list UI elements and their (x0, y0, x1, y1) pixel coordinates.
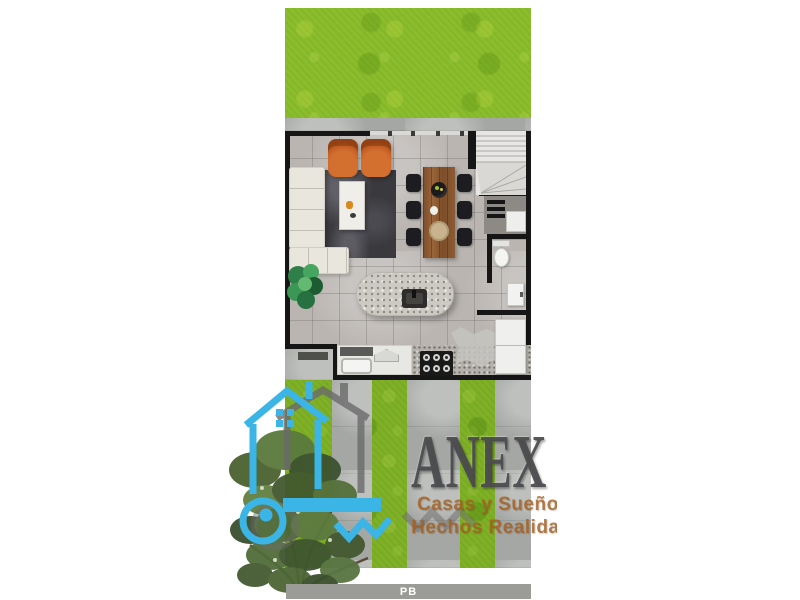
front-window (370, 131, 468, 135)
dining-table (423, 167, 455, 258)
stove-burner (443, 365, 450, 372)
anex-watermark: ANEX Casas y Sueños Hechos Realidad (235, 380, 557, 570)
wall-stair-upper (468, 131, 476, 169)
sofa-section-vertical (289, 167, 325, 249)
closet-shelf (487, 214, 505, 218)
appliance (506, 211, 526, 232)
closet-shelf (487, 207, 505, 211)
stove-burner (433, 365, 440, 372)
serving-plate (431, 182, 447, 198)
table-vase (346, 201, 353, 209)
flower-cup (430, 206, 438, 215)
refrigerator-door-split (495, 345, 526, 346)
window-mullion (460, 131, 464, 136)
stove-burner (423, 354, 430, 361)
window-mullion (411, 131, 415, 136)
food-garnish (440, 188, 443, 191)
window-mullion (436, 131, 440, 136)
floorplan-render: ANEX Casas y Sueños Hechos Realidad PB (0, 0, 800, 600)
floor-label: PB (400, 586, 417, 598)
indoor-plant (284, 262, 326, 312)
wall-right (526, 131, 531, 380)
kitchen-sink (341, 358, 372, 374)
closet-shelf (487, 200, 505, 204)
brand-wordmark: ANEX (411, 424, 547, 500)
dining-chair (457, 174, 472, 192)
dining-chair (406, 201, 421, 219)
door-mat (298, 352, 328, 360)
toilet-tank (492, 240, 510, 247)
stove-burner (443, 354, 450, 361)
food-garnish (435, 186, 439, 190)
wall-bath-bottom (477, 310, 531, 315)
counter-mat (340, 347, 373, 356)
wall-bath-top (487, 234, 531, 239)
dining-chair (406, 174, 421, 192)
stove-burner (423, 365, 430, 372)
island-faucet (412, 290, 416, 298)
dining-chair (457, 228, 472, 246)
wall-top-left (285, 131, 370, 136)
toilet-bowl (494, 248, 509, 267)
accent-chair (328, 139, 358, 177)
refrigerator (495, 319, 526, 374)
tagline-line1: Casas y Sueños (417, 495, 557, 516)
dining-chair (406, 228, 421, 246)
dining-chair (457, 201, 472, 219)
tagline-line2: Hechos Realidad (411, 518, 557, 539)
sink-faucet (520, 292, 523, 297)
window-mullion (388, 131, 392, 136)
front-yard-grass (285, 8, 531, 118)
accent-chair (361, 139, 391, 177)
stove-burner (433, 354, 440, 361)
table-decor (350, 213, 356, 218)
round-platter (429, 221, 449, 241)
floor-label-bar: PB (286, 584, 531, 599)
staircase (476, 131, 526, 195)
front-sidewalk (285, 118, 531, 131)
